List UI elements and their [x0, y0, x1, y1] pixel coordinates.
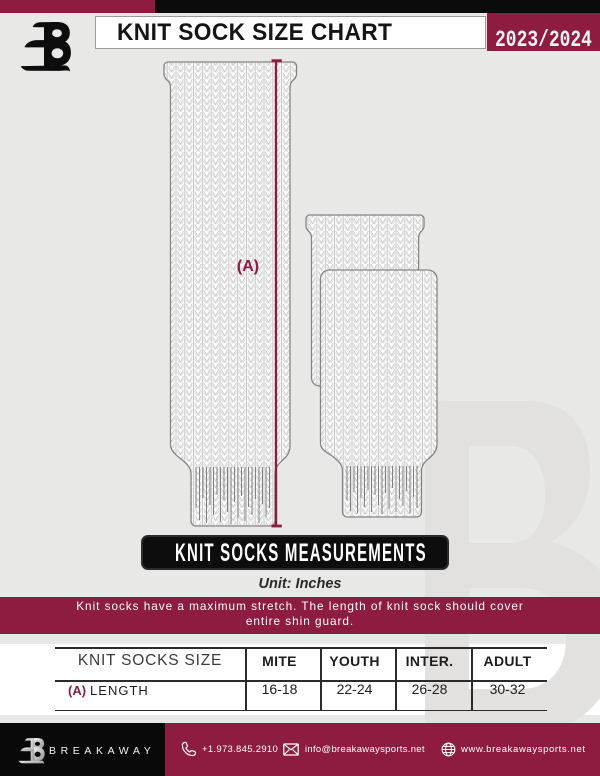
svg-text:(A): (A) [237, 258, 259, 275]
